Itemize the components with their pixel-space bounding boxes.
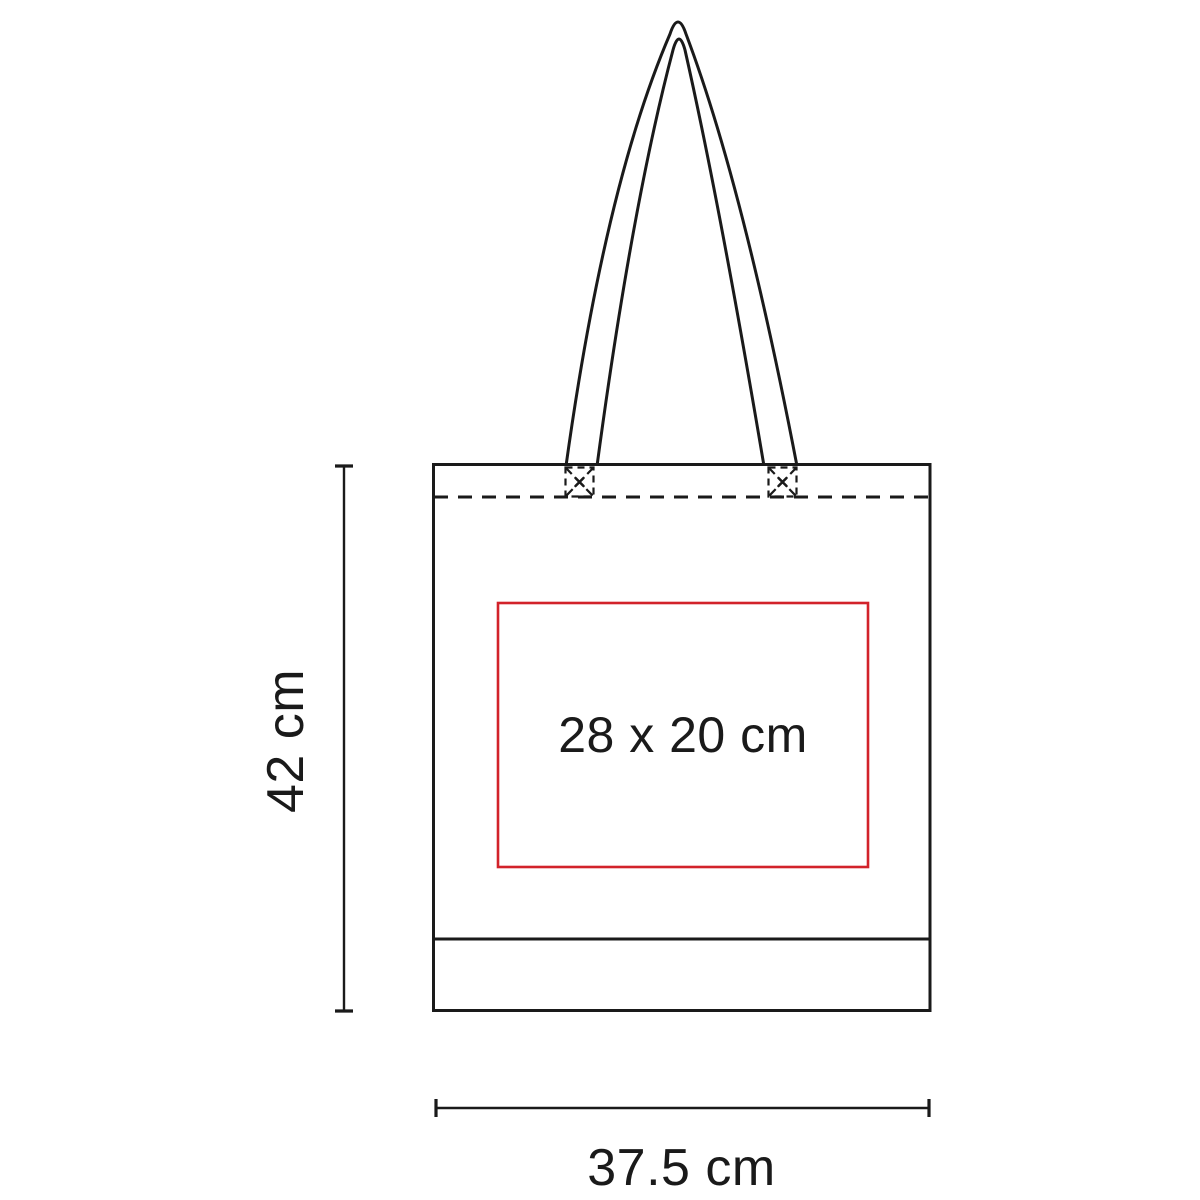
handle-outer-line: [566, 22, 797, 466]
height-dimension-label: 42 cm: [256, 669, 316, 813]
tote-bag-diagram: [0, 0, 1200, 1200]
print-area-label: 28 x 20 cm: [498, 603, 868, 867]
height-dimension-line: [335, 466, 353, 1011]
width-dimension-label: 37.5 cm: [433, 1138, 930, 1198]
width-dimension-line: [436, 1099, 929, 1117]
handle-straps: [566, 22, 797, 466]
diagram-canvas: 28 x 20 cm 42 cm 37.5 cm: [0, 0, 1200, 1200]
handle-inner-line: [597, 39, 764, 466]
